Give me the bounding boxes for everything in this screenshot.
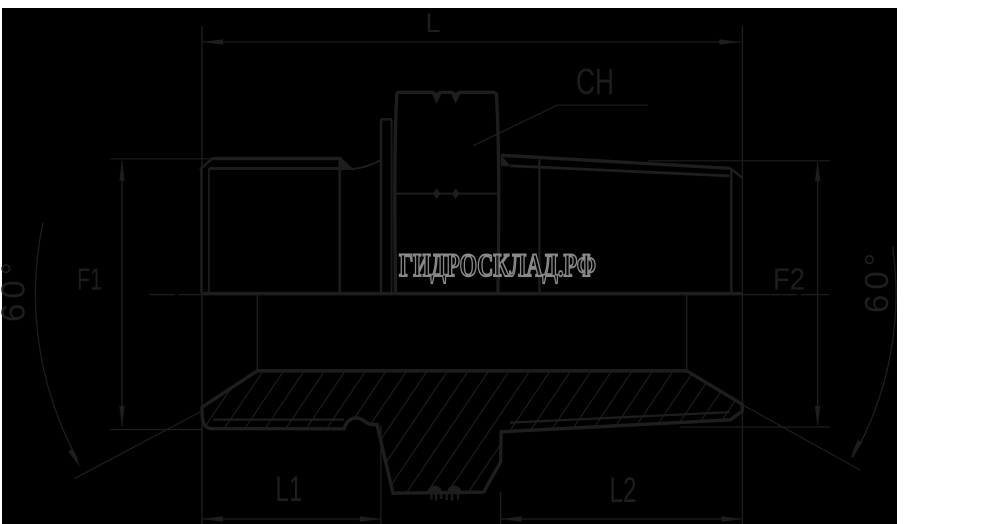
- svg-text:CH: CH: [576, 61, 614, 102]
- svg-text:F1: F1: [77, 262, 102, 297]
- svg-text:ГИДРОСКЛАД.РФ: ГИДРОСКЛАД.РФ: [399, 248, 596, 284]
- svg-text:L: L: [426, 8, 441, 38]
- svg-text:60°: 60°: [0, 257, 32, 322]
- svg-text:60°: 60°: [858, 248, 895, 313]
- svg-text:F2: F2: [773, 262, 805, 297]
- svg-text:L2: L2: [610, 471, 637, 510]
- svg-text:L1: L1: [275, 470, 302, 509]
